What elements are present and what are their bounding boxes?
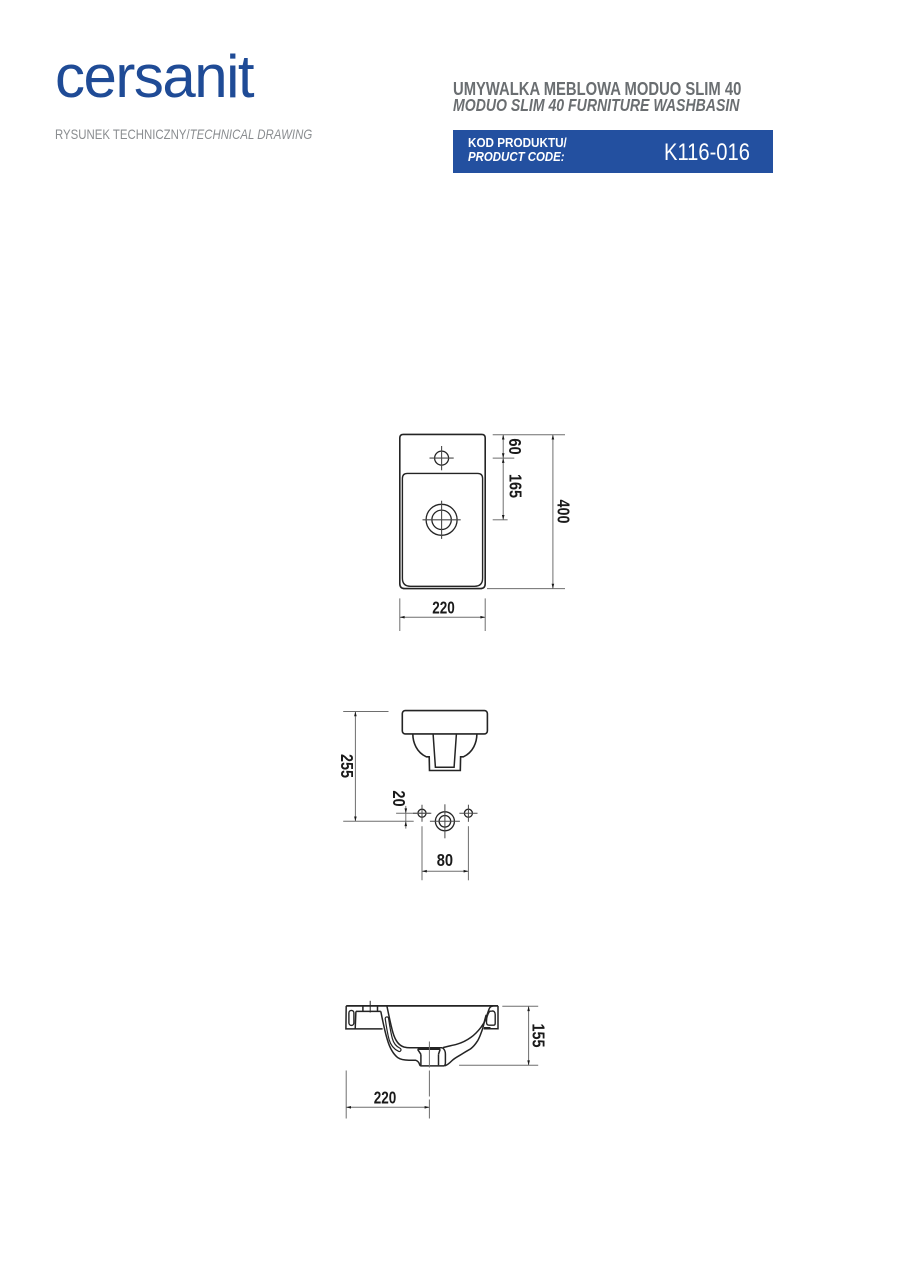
svg-text:20: 20 <box>389 790 409 806</box>
svg-text:220: 220 <box>432 598 455 618</box>
svg-text:155: 155 <box>528 1024 548 1048</box>
svg-text:400: 400 <box>554 500 574 524</box>
svg-text:60: 60 <box>505 438 525 454</box>
svg-text:255: 255 <box>337 754 357 778</box>
svg-text:165: 165 <box>505 474 525 498</box>
svg-text:220: 220 <box>374 1087 397 1107</box>
svg-text:80: 80 <box>437 850 453 870</box>
